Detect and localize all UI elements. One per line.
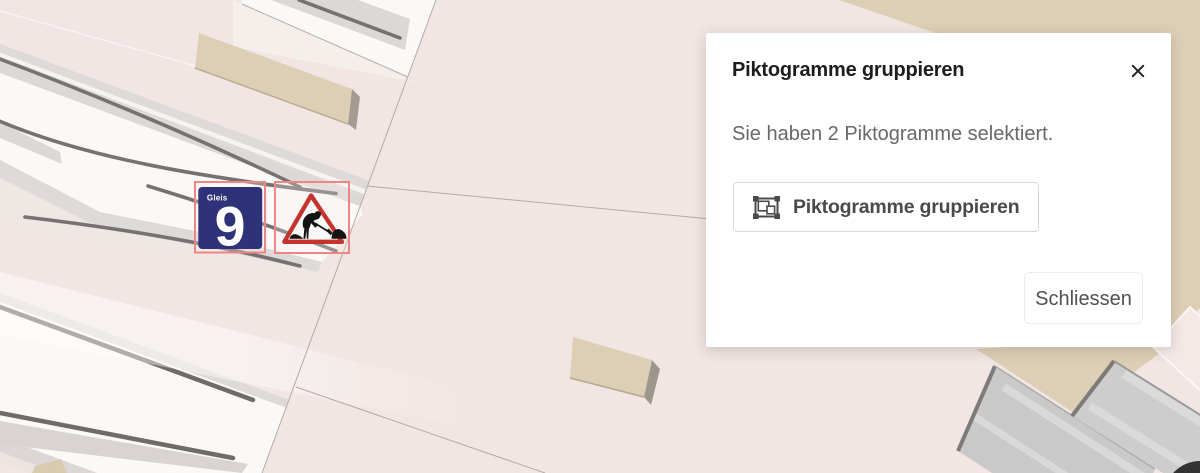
svg-text:9: 9 (215, 195, 246, 257)
